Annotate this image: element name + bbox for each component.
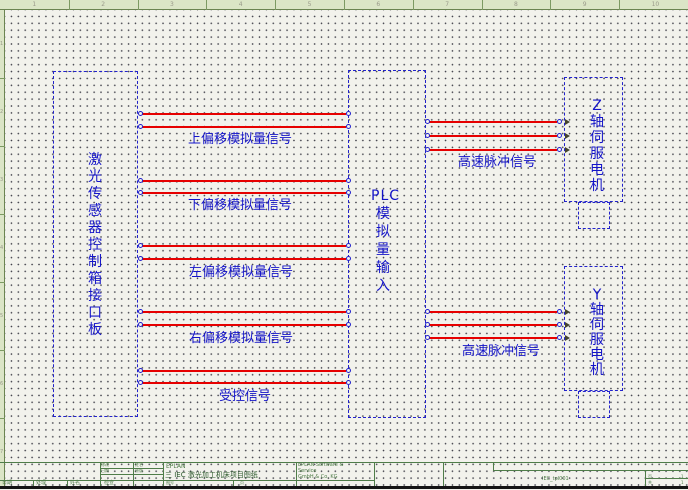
wire-port[interactable] (138, 111, 143, 116)
titleblock-text: 页 (648, 475, 652, 479)
wire-port[interactable] (138, 124, 143, 129)
ruler-number: 10 (652, 1, 660, 9)
ruler-number: 6 (376, 1, 380, 9)
signal-wire[interactable] (429, 121, 557, 123)
titleblock-line (296, 462, 297, 486)
wire-port[interactable] (425, 133, 430, 138)
wire-port[interactable] (138, 178, 143, 183)
sheet-bottom-border (0, 486, 688, 489)
signal-wire[interactable] (429, 337, 557, 339)
ruler-number: 3 (170, 1, 174, 9)
titleblock-line (374, 462, 375, 486)
ruler-tick (0, 418, 5, 419)
component-box-z-axis-servo-connector[interactable] (578, 202, 610, 229)
box-vertical-title-laser-sensor-interface-board: 激光传感器控制箱接口板 (86, 152, 104, 339)
wire-port[interactable] (346, 178, 351, 183)
ruler-tick (482, 0, 483, 10)
titleblock-text: 1 (681, 481, 684, 485)
port-arrow-icon (565, 147, 570, 153)
net-label[interactable]: 上偏移模拟量信号 (188, 132, 292, 147)
signal-wire[interactable] (142, 258, 346, 260)
wire-port[interactable] (557, 322, 562, 327)
wire-port[interactable] (138, 309, 143, 314)
wire-port[interactable] (425, 147, 430, 152)
box-vertical-title-y-axis-servo-motor: Y轴伺服电机 (588, 288, 606, 378)
wire-port[interactable] (138, 256, 143, 261)
box-vertical-title-z-axis-servo-motor: Z轴伺服电机 (588, 98, 606, 194)
titleblock-text: GmbH & Co. KG (298, 475, 338, 481)
net-label[interactable]: 高速脉冲信号 (458, 155, 536, 170)
titleblock-line (100, 468, 163, 469)
titleblock-text: 三 IEC 激光加工机床项目图纸 (165, 472, 258, 480)
titleblock-text: 修改 (101, 463, 109, 467)
titleblock-text: 日期 (101, 469, 109, 473)
ruler-tick (0, 146, 5, 147)
port-arrow-icon (565, 133, 570, 139)
wire-port[interactable] (346, 124, 351, 129)
ruler-number: 4 (0, 246, 3, 251)
wire-port[interactable] (346, 190, 351, 195)
wire-port[interactable] (138, 190, 143, 195)
titleblock-line (443, 462, 444, 486)
signal-wire[interactable] (429, 149, 557, 151)
ruler-number: 5 (308, 1, 312, 9)
wire-port[interactable] (346, 243, 351, 248)
wire-port[interactable] (138, 322, 143, 327)
ruler-number: 7 (0, 450, 3, 455)
ruler-tick (69, 0, 70, 10)
ruler-number: 4 (239, 1, 243, 9)
ruler-tick (275, 0, 276, 10)
wire-port[interactable] (557, 147, 562, 152)
signal-wire[interactable] (429, 324, 557, 326)
wire-port[interactable] (425, 309, 430, 314)
wire-port[interactable] (557, 335, 562, 340)
titleblock-text: 图号 (166, 481, 174, 485)
signal-wire[interactable] (429, 311, 557, 313)
signal-wire[interactable] (142, 382, 346, 384)
ruler-tick (413, 0, 414, 10)
titleblock-line (493, 470, 688, 471)
box-vertical-title-plc-analog-input: 模拟量输入 (374, 205, 392, 295)
titleblock-text: 原版 (135, 469, 143, 473)
ruler-tick (0, 214, 5, 215)
left-ruler: 1234567 (0, 10, 5, 486)
wire-port[interactable] (346, 256, 351, 261)
wire-port[interactable] (425, 119, 430, 124)
ruler-number: 9 (583, 1, 587, 9)
wire-port[interactable] (346, 368, 351, 373)
ruler-tick (619, 0, 620, 10)
wire-port[interactable] (557, 309, 562, 314)
titleblock-line (645, 470, 646, 486)
wire-port[interactable] (425, 322, 430, 327)
ruler-tick (550, 0, 551, 10)
net-label[interactable]: 高速脉冲信号 (462, 344, 540, 359)
box-title-plc-analog-input: PLC (371, 189, 400, 203)
titleblock-line (163, 462, 164, 486)
titleblock-line (100, 474, 163, 475)
wire-port[interactable] (346, 322, 351, 327)
titleblock-text: 共 (648, 481, 652, 485)
wire-port[interactable] (138, 243, 143, 248)
wire-port[interactable] (138, 368, 143, 373)
wire-port[interactable] (346, 111, 351, 116)
signal-wire[interactable] (142, 245, 346, 247)
signal-wire[interactable] (142, 180, 346, 182)
signal-wire[interactable] (142, 311, 346, 313)
signal-wire[interactable] (142, 126, 346, 128)
ruler-number: 1 (0, 42, 3, 47)
top-ruler: 12345678910 (0, 0, 688, 10)
signal-wire[interactable] (142, 324, 346, 326)
schematic-sheet: 12345678910 1234567 日期处理姓名检查修改日期姓名原版EPLA… (0, 0, 688, 490)
titleblock-line (493, 462, 494, 470)
title-block: 日期处理姓名检查修改日期姓名原版EPLAN三 IEC 激光加工机床项目图纸图号页… (0, 462, 688, 486)
wire-port[interactable] (425, 335, 430, 340)
titleblock-text: 页 (240, 481, 244, 485)
titleblock-line (133, 462, 134, 486)
ruler-number: 3 (0, 178, 3, 183)
ruler-number: 1 (32, 1, 36, 9)
titleblock-text: 姓名 (135, 463, 143, 467)
ruler-tick (206, 0, 207, 10)
ruler-tick (0, 78, 5, 79)
signal-wire[interactable] (142, 113, 346, 115)
ruler-tick (138, 0, 139, 10)
wire-port[interactable] (346, 309, 351, 314)
wire-port[interactable] (346, 380, 351, 385)
ruler-number: 7 (445, 1, 449, 9)
ruler-tick (0, 282, 5, 283)
wire-port[interactable] (557, 133, 562, 138)
ruler-tick (344, 0, 345, 10)
net-label[interactable]: 左偏移模拟量信号 (189, 265, 293, 280)
port-arrow-icon (565, 322, 570, 328)
port-arrow-icon (565, 309, 570, 315)
signal-wire[interactable] (142, 370, 346, 372)
wire-port[interactable] (557, 119, 562, 124)
ruler-number: 6 (0, 382, 3, 387)
component-box-y-axis-servo-connector[interactable] (578, 391, 610, 418)
titleblock-text: 1 (681, 475, 684, 479)
net-label[interactable]: 右偏移模拟量信号 (189, 331, 293, 346)
port-arrow-icon (565, 119, 570, 125)
ruler-number: 2 (0, 110, 3, 115)
titleblock-text: EPLAN (166, 464, 185, 471)
titleblock-text: IEC_tpl001 (542, 477, 569, 483)
ruler-number: 8 (514, 1, 518, 9)
net-label[interactable]: 受控信号 (219, 389, 271, 404)
signal-wire[interactable] (142, 192, 346, 194)
ruler-number: 2 (101, 1, 105, 9)
signal-wire[interactable] (429, 135, 557, 137)
port-arrow-icon (565, 335, 570, 341)
ruler-number: 5 (0, 314, 3, 319)
wire-port[interactable] (138, 380, 143, 385)
ruler-tick (0, 350, 5, 351)
net-label[interactable]: 下偏移模拟量信号 (188, 198, 292, 213)
